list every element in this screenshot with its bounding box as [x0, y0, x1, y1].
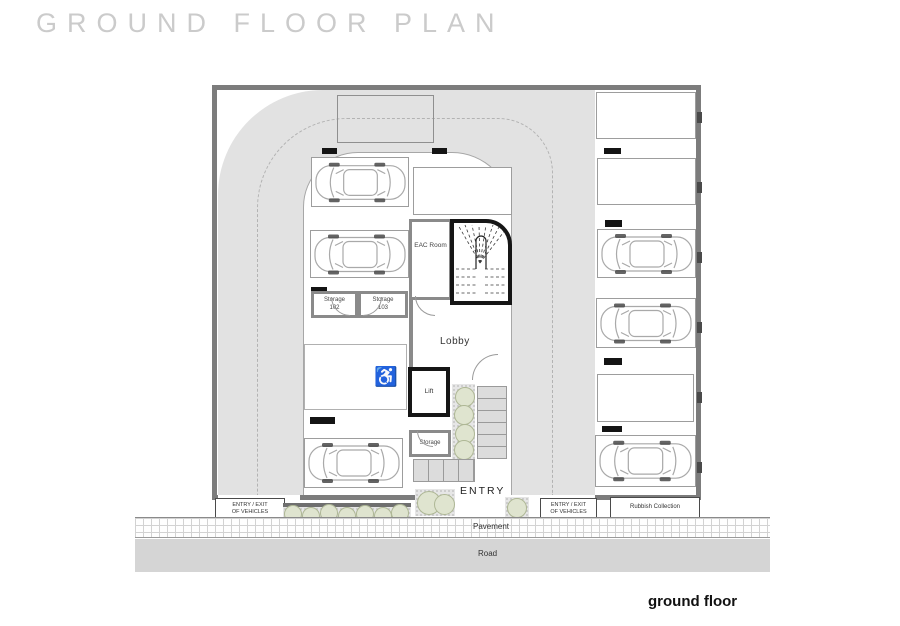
bush	[455, 387, 475, 407]
column-marker	[604, 148, 621, 154]
staircase	[450, 219, 512, 305]
parking-stall	[311, 157, 409, 207]
top-parking-bay	[337, 95, 434, 143]
parking-stall	[596, 298, 696, 348]
lobby-label: Lobby	[440, 336, 490, 347]
bush	[454, 440, 474, 460]
car-icon	[597, 437, 694, 485]
floor-plan-page: GROUND FLOOR PLAN ♿ EAC Room	[0, 0, 900, 626]
wall-tick	[697, 252, 702, 263]
rubbish-collection-label: Rubbish Collection	[630, 504, 680, 511]
car-icon	[599, 231, 695, 277]
parking-stall-empty	[596, 92, 696, 139]
lift: Lift	[408, 367, 450, 417]
parking-stall	[595, 435, 696, 487]
road-label: Road	[478, 549, 497, 558]
wall-tick	[697, 322, 702, 333]
hedge-strip	[283, 503, 411, 518]
parking-stall-empty	[413, 167, 512, 215]
car-icon	[306, 440, 402, 486]
stair-newel	[476, 236, 486, 269]
column-marker	[310, 417, 335, 424]
wall-tick	[697, 392, 702, 403]
eac-room-label: EAC Room	[414, 242, 447, 250]
planter-strip	[452, 384, 475, 459]
column-marker	[605, 220, 622, 227]
stairs-icon	[454, 223, 508, 301]
accessible-parking-stall: ♿	[304, 344, 407, 410]
wheelchair-icon: ♿	[374, 365, 398, 389]
pavement-label: Pavement	[473, 522, 509, 531]
car-icon	[313, 159, 408, 206]
bush	[434, 494, 455, 515]
car-icon	[312, 232, 408, 277]
parking-stall	[597, 229, 696, 278]
entry-steps	[413, 459, 475, 482]
wall-tick	[697, 112, 702, 123]
entry-planter	[415, 489, 455, 516]
parking-stall-empty	[597, 158, 696, 205]
parking-stall-empty	[597, 374, 694, 422]
rubbish-collection-area: Rubbish Collection	[610, 497, 700, 518]
lift-label: Lift	[425, 388, 434, 396]
column-marker	[604, 358, 622, 365]
column-marker	[602, 426, 622, 432]
entry-planter	[505, 497, 529, 517]
pavement: Pavement	[135, 517, 770, 538]
page-title: GROUND FLOOR PLAN	[36, 8, 505, 39]
parking-stall	[310, 230, 409, 278]
vehicle-entry-exit-label: ENTRY / EXIT OF VEHICLES	[232, 502, 268, 516]
column-marker	[322, 148, 337, 154]
column-marker	[432, 148, 447, 154]
eac-room: EAC Room	[409, 219, 452, 300]
bush	[454, 405, 474, 425]
car-icon	[598, 300, 694, 347]
entry-label: ENTRY	[460, 485, 505, 497]
floor-caption: ground floor	[648, 593, 737, 610]
vehicle-entry-exit-label: ENTRY / EXIT OF VEHICLES	[550, 502, 586, 516]
wall-tick	[697, 462, 702, 473]
wall	[409, 300, 413, 368]
road: Road	[135, 539, 770, 572]
entry-steps	[477, 386, 507, 459]
bush	[507, 498, 527, 518]
wall-tick	[697, 182, 702, 193]
parking-stall	[304, 438, 403, 488]
